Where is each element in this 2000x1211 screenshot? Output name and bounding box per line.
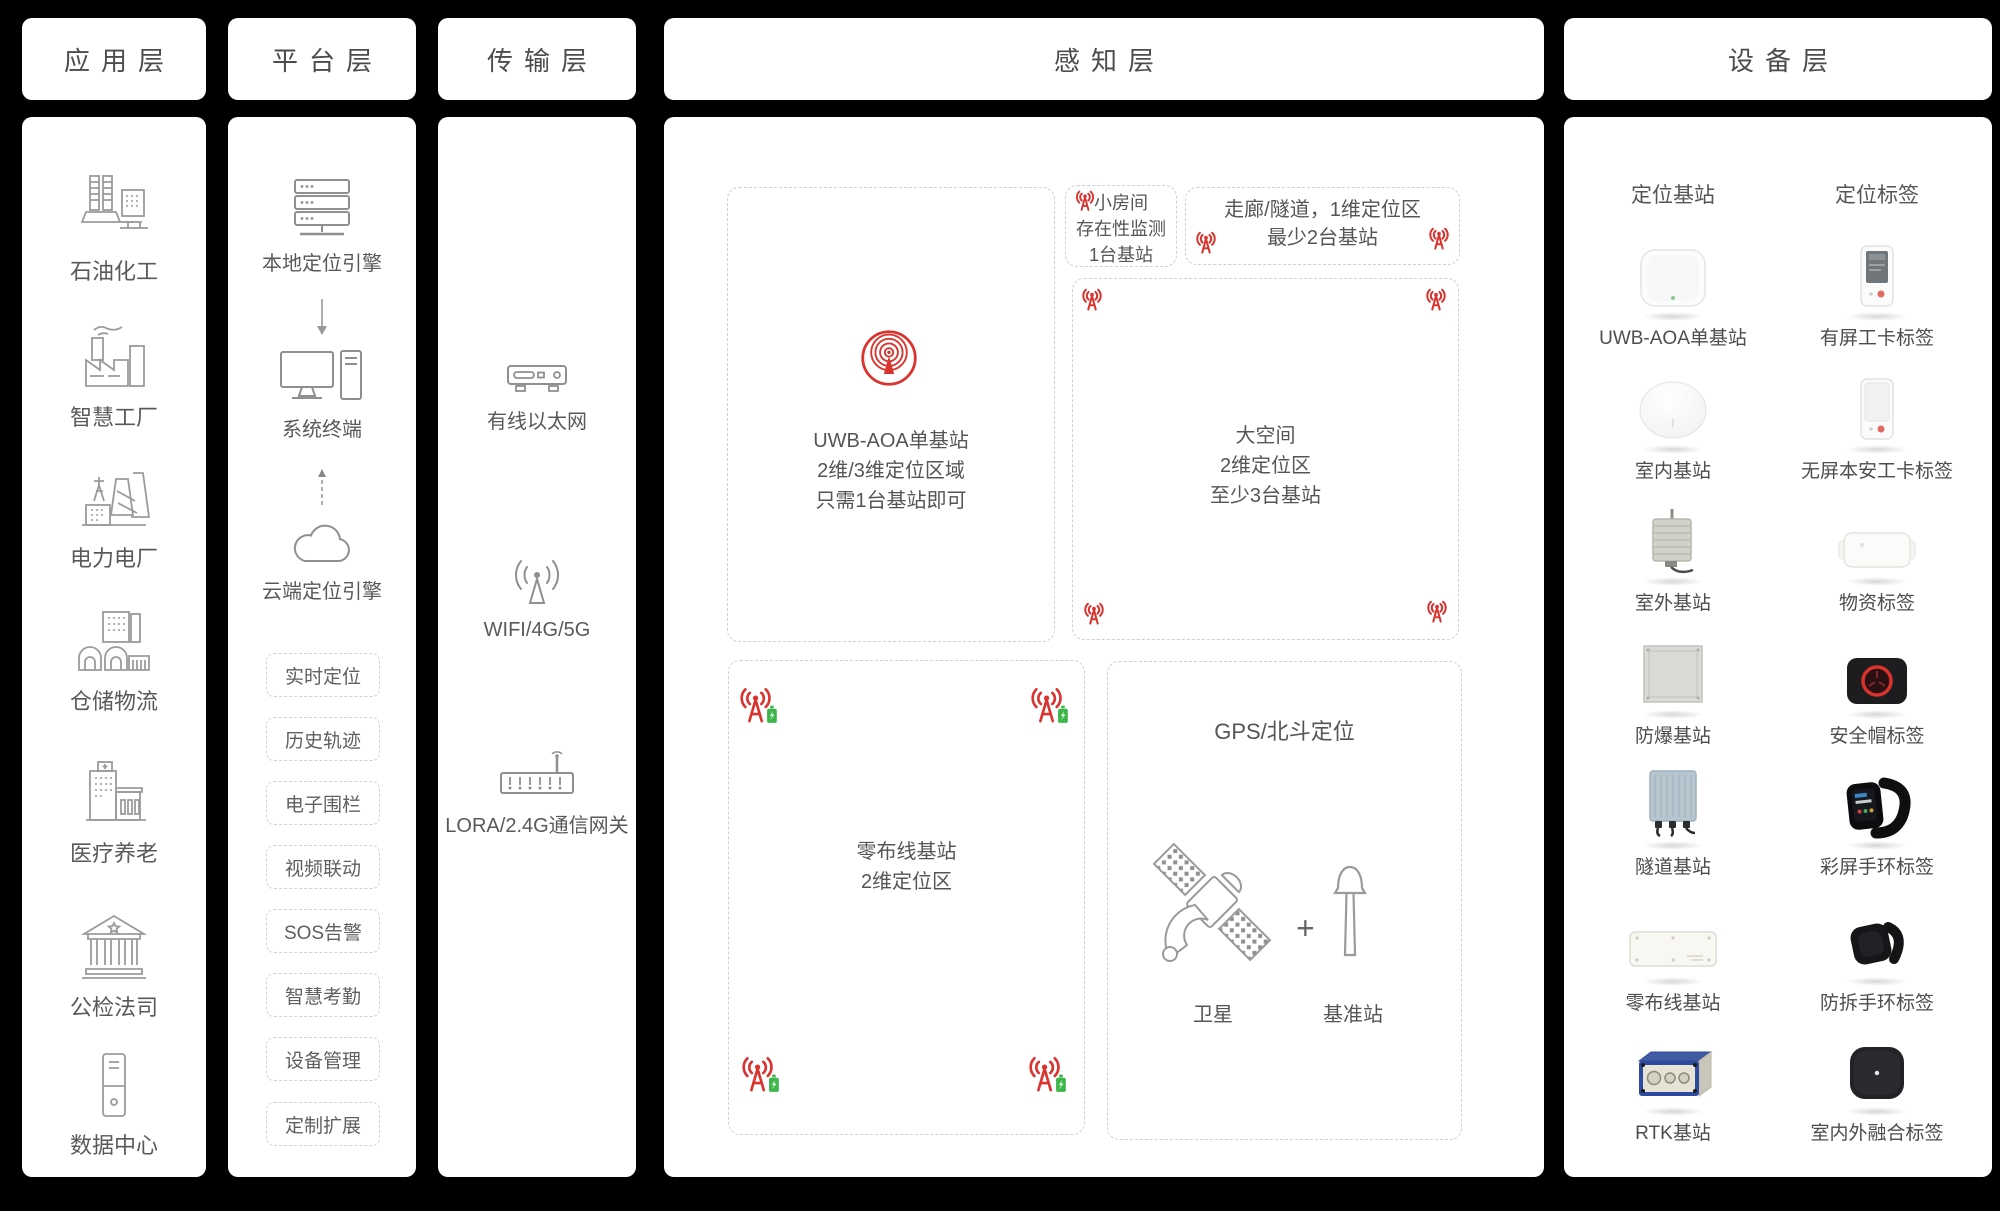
app-item-label: 数据中心 <box>22 1128 206 1160</box>
device-explosion-proof-anchor: 防爆基站 <box>1578 636 1768 748</box>
device-label: 零布线基站 <box>1578 988 1768 1015</box>
large-space-line3: 至少3台基站 <box>1073 481 1458 511</box>
satellite-icon <box>1146 840 1278 982</box>
device-shadow <box>1846 977 1908 986</box>
device-screen-badge-tag: 有屏工卡标签 <box>1776 238 1978 350</box>
app-item-label: 石油化工 <box>22 254 206 286</box>
oil-refinery-icon <box>22 170 206 248</box>
device-row: 零布线基站 防拆手环标签 <box>1564 903 1992 1015</box>
gnss-zone-title: GPS/北斗定位 <box>1108 714 1461 746</box>
zero-wiring-line1: 零布线基站 <box>729 837 1084 867</box>
device-zero-wiring-anchor: 零布线基站 <box>1578 903 1768 1015</box>
helmet-tag-image <box>1776 636 1978 708</box>
app-item-warehouse: 仓储物流 <box>22 600 206 716</box>
app-layer-title: 应用层 <box>53 41 175 78</box>
device-tamper-proof-wristband-tag: 防拆手环标签 <box>1776 903 1978 1015</box>
signal-antenna-icon <box>1080 601 1108 629</box>
feature-device-management: 设备管理 <box>266 1037 380 1081</box>
device-shadow <box>1846 445 1908 454</box>
circled-broadcast-antenna-icon <box>859 328 919 388</box>
battery-antenna-icon <box>1028 685 1074 729</box>
device-label: 室内基站 <box>1578 456 1768 483</box>
device-tunnel-anchor: 隧道基站 <box>1578 767 1768 879</box>
tunnel-anchor-image <box>1578 767 1768 839</box>
app-item-label: 仓储物流 <box>22 684 206 716</box>
signal-antenna-icon <box>1192 230 1220 258</box>
explosion-proof-anchor-image <box>1578 636 1768 708</box>
uwb-zone-line1: UWB-AOA单基站 <box>728 426 1054 456</box>
device-label: RTK基站 <box>1578 1118 1768 1145</box>
feature-label: 历史轨迹 <box>285 726 361 753</box>
signal-antenna-icon <box>1078 287 1106 315</box>
outdoor-anchor-image <box>1578 503 1768 575</box>
large-space-line2: 2维定位区 <box>1073 451 1458 481</box>
uwb-aoa-zone: UWB-AOA单基站 2维/3维定位区域 只需1台基站即可 <box>727 187 1055 642</box>
architecture-diagram: 应用层 平台层 传输层 感知层 设备层 <box>0 0 2000 1211</box>
small-room-line3: 1台基站 <box>1066 242 1176 268</box>
corridor-line1: 走廊/隧道，1维定位区 <box>1186 196 1459 224</box>
platform-node-terminal: 系统终端 <box>228 349 416 442</box>
device-row: RTK基站 室内外融合标签 <box>1564 1033 1992 1145</box>
arrow-down-icon <box>228 299 416 337</box>
app-item-healthcare: 医疗养老 <box>22 752 206 868</box>
app-layer-body: 石油化工 智慧工厂 <box>22 117 206 1177</box>
asset-tag-image <box>1776 503 1978 575</box>
device-label: 有屏工卡标签 <box>1776 323 1978 350</box>
transport-layer-header: 传输层 <box>438 18 636 100</box>
transport-layer-title: 传输层 <box>476 41 598 78</box>
device-label: 隧道基站 <box>1578 852 1768 879</box>
battery-antenna-icon <box>737 685 783 729</box>
ethernet-device-icon <box>438 363 636 395</box>
perception-layer-title: 感知层 <box>1043 41 1165 78</box>
feature-sos-alarm: SOS告警 <box>266 909 380 953</box>
device-label: 室内外融合标签 <box>1776 1118 1978 1145</box>
device-label: 安全帽标签 <box>1776 721 1978 748</box>
small-room-line1: 小房间 <box>1066 190 1176 216</box>
transport-item-label: 有线以太网 <box>438 405 636 434</box>
platform-node-label: 云端定位引擎 <box>228 575 416 604</box>
device-helmet-tag: 安全帽标签 <box>1776 636 1978 748</box>
signal-antenna-icon <box>1423 599 1451 627</box>
platform-node-cloud-engine: 云端定位引擎 <box>228 521 416 604</box>
feature-label: 定制扩展 <box>285 1111 361 1138</box>
device-outdoor-anchor: 室外基站 <box>1578 503 1768 615</box>
gnss-base-station-icon <box>1328 860 1372 970</box>
screen-badge-tag-image <box>1776 238 1978 310</box>
device-color-wristband-tag: 彩屏手环标签 <box>1776 767 1978 879</box>
stations-column-header: 定位基站 <box>1578 179 1768 209</box>
device-rtk-base-station: RTK基站 <box>1578 1033 1768 1145</box>
platform-layer-header: 平台层 <box>228 18 416 100</box>
device-label: UWB-AOA单基站 <box>1578 323 1768 350</box>
feature-smart-attendance: 智慧考勤 <box>266 973 380 1017</box>
device-shadow <box>1642 841 1704 850</box>
app-item-data-center: 数据中心 <box>22 1044 206 1160</box>
device-label: 防爆基站 <box>1578 721 1768 748</box>
indoor-outdoor-fusion-tag-image <box>1776 1033 1978 1105</box>
device-label: 物资标签 <box>1776 588 1978 615</box>
battery-antenna-icon <box>1026 1054 1072 1098</box>
app-item-justice: 公检法司 <box>22 906 206 1022</box>
satellite-label: 卫星 <box>1166 998 1260 1027</box>
zero-wiring-zone: 零布线基站 2维定位区 <box>728 660 1085 1135</box>
gnss-base-station-label: 基准站 <box>1303 998 1403 1027</box>
device-row: 隧道基站 彩屏手环标签 <box>1564 767 1992 879</box>
device-shadow <box>1642 710 1704 719</box>
platform-layer-title: 平台层 <box>261 41 383 78</box>
perception-layer-header: 感知层 <box>664 18 1544 100</box>
device-label: 无屏本安工卡标签 <box>1776 456 1978 483</box>
perception-layer-body: UWB-AOA单基站 2维/3维定位区域 只需1台基站即可 小房间 <box>664 117 1544 1177</box>
uwb-zone-line3: 只需1台基站即可 <box>728 486 1054 516</box>
platform-node-local-engine: 本地定位引擎 <box>228 177 416 276</box>
transport-item-wireless: WIFI/4G/5G <box>438 559 636 642</box>
device-noscreen-badge-tag: 无屏本安工卡标签 <box>1776 371 1978 483</box>
plus-sign: + <box>1296 910 1315 947</box>
device-label: 室外基站 <box>1578 588 1768 615</box>
app-item-label: 公检法司 <box>22 990 206 1022</box>
device-layer-body: 定位基站 定位标签 UWB-AOA单基站 <box>1564 117 1992 1177</box>
corridor-text: 走廊/隧道，1维定位区 最少2台基站 <box>1186 196 1459 252</box>
small-room-zone: 小房间 存在性监测 1台基站 <box>1065 185 1177 267</box>
device-indoor-anchor: 室内基站 <box>1578 371 1768 483</box>
device-indoor-outdoor-fusion-tag: 室内外融合标签 <box>1776 1033 1978 1145</box>
feature-label: 视频联动 <box>285 854 361 881</box>
app-item-power-plant: 电力电厂 <box>22 457 206 573</box>
transport-item-label: LORA/2.4G通信网关 <box>438 809 636 838</box>
feature-history-track: 历史轨迹 <box>266 717 380 761</box>
color-wristband-tag-image <box>1776 767 1978 839</box>
device-shadow <box>1846 577 1908 586</box>
device-shadow <box>1846 710 1908 719</box>
transport-item-label: WIFI/4G/5G <box>438 619 636 642</box>
device-row: 防爆基站 安全帽标签 <box>1564 636 1992 748</box>
corridor-line2: 最少2台基站 <box>1186 224 1459 252</box>
rtk-base-station-image <box>1578 1033 1768 1105</box>
data-center-icon <box>22 1044 206 1122</box>
gnss-zone: GPS/北斗定位 <box>1107 661 1462 1140</box>
zero-wiring-line2: 2维定位区 <box>729 867 1084 897</box>
tamper-proof-wristband-tag-image <box>1776 903 1978 975</box>
feature-label: 设备管理 <box>285 1046 361 1073</box>
platform-node-label: 系统终端 <box>228 413 416 442</box>
desktop-terminal-icon <box>228 349 416 405</box>
device-row: 室内基站 无屏本安工卡标签 <box>1564 371 1992 483</box>
transport-item-ethernet: 有线以太网 <box>438 363 636 434</box>
signal-antenna-icon <box>1425 226 1453 254</box>
feature-label: 智慧考勤 <box>285 982 361 1009</box>
tags-column-header: 定位标签 <box>1776 179 1978 209</box>
signal-antenna-icon <box>1422 287 1450 315</box>
feature-geofence: 电子围栏 <box>266 781 380 825</box>
lora-gateway-icon <box>438 751 636 799</box>
noscreen-badge-tag-image <box>1776 371 1978 443</box>
device-label: 防拆手环标签 <box>1776 988 1978 1015</box>
transport-item-lora-gateway: LORA/2.4G通信网关 <box>438 751 636 838</box>
feature-label: SOS告警 <box>284 918 362 945</box>
small-room-text: 小房间 存在性监测 1台基站 <box>1066 190 1176 268</box>
large-space-text: 大空间 2维定位区 至少3台基站 <box>1073 421 1458 511</box>
arrow-up-dashed-icon <box>228 467 416 505</box>
zero-wiring-text: 零布线基站 2维定位区 <box>729 837 1084 897</box>
hospital-icon <box>22 752 206 830</box>
app-item-label: 智慧工厂 <box>22 400 206 432</box>
feature-label: 实时定位 <box>285 662 361 689</box>
courthouse-icon <box>22 906 206 984</box>
battery-antenna-icon <box>739 1054 785 1098</box>
feature-realtime-location: 实时定位 <box>266 653 380 697</box>
app-layer-header: 应用层 <box>22 18 206 100</box>
device-uwb-aoa-anchor: UWB-AOA单基站 <box>1578 238 1768 350</box>
power-plant-icon <box>22 457 206 535</box>
app-item-label: 电力电厂 <box>22 541 206 573</box>
device-shadow <box>1642 577 1704 586</box>
cloud-icon <box>228 521 416 567</box>
device-shadow <box>1846 841 1908 850</box>
device-shadow <box>1846 312 1908 321</box>
feature-video-linkage: 视频联动 <box>266 845 380 889</box>
platform-layer-body: 本地定位引擎 系统终端 <box>228 117 416 1177</box>
uwb-zone-line2: 2维/3维定位区域 <box>728 456 1054 486</box>
transport-layer-body: 有线以太网 WIFI/4G/5G <box>438 117 636 1177</box>
small-room-line2: 存在性监测 <box>1066 216 1176 242</box>
platform-node-label: 本地定位引擎 <box>228 247 416 276</box>
device-asset-tag: 物资标签 <box>1776 503 1978 615</box>
app-item-smart-factory: 智慧工厂 <box>22 316 206 432</box>
corridor-tunnel-zone: 走廊/隧道，1维定位区 最少2台基站 <box>1185 187 1460 265</box>
device-row: 室外基站 物资标签 <box>1564 503 1992 615</box>
feature-label: 电子围栏 <box>285 790 361 817</box>
zero-wiring-anchor-image <box>1578 903 1768 975</box>
server-stack-icon <box>228 177 416 239</box>
device-row: UWB-AOA单基站 有屏工卡标签 <box>1564 238 1992 350</box>
uwb-zone-text: UWB-AOA单基站 2维/3维定位区域 只需1台基站即可 <box>728 426 1054 516</box>
app-item-label: 医疗养老 <box>22 836 206 868</box>
wireless-antenna-icon <box>438 559 636 609</box>
large-space-line1: 大空间 <box>1073 421 1458 451</box>
device-shadow <box>1642 445 1704 454</box>
device-layer-title: 设备层 <box>1717 41 1839 78</box>
device-shadow <box>1642 1107 1704 1116</box>
device-shadow <box>1846 1107 1908 1116</box>
device-label: 彩屏手环标签 <box>1776 852 1978 879</box>
feature-custom-extension: 定制扩展 <box>266 1102 380 1146</box>
uwb-aoa-anchor-image <box>1578 238 1768 310</box>
large-space-zone: 大空间 2维定位区 至少3台基站 <box>1072 278 1459 640</box>
app-item-petrochemical: 石油化工 <box>22 170 206 286</box>
warehouse-logistics-icon <box>22 600 206 678</box>
indoor-anchor-image <box>1578 371 1768 443</box>
device-shadow <box>1642 312 1704 321</box>
device-shadow <box>1642 977 1704 986</box>
device-layer-header: 设备层 <box>1564 18 1992 100</box>
smart-factory-icon <box>22 316 206 394</box>
